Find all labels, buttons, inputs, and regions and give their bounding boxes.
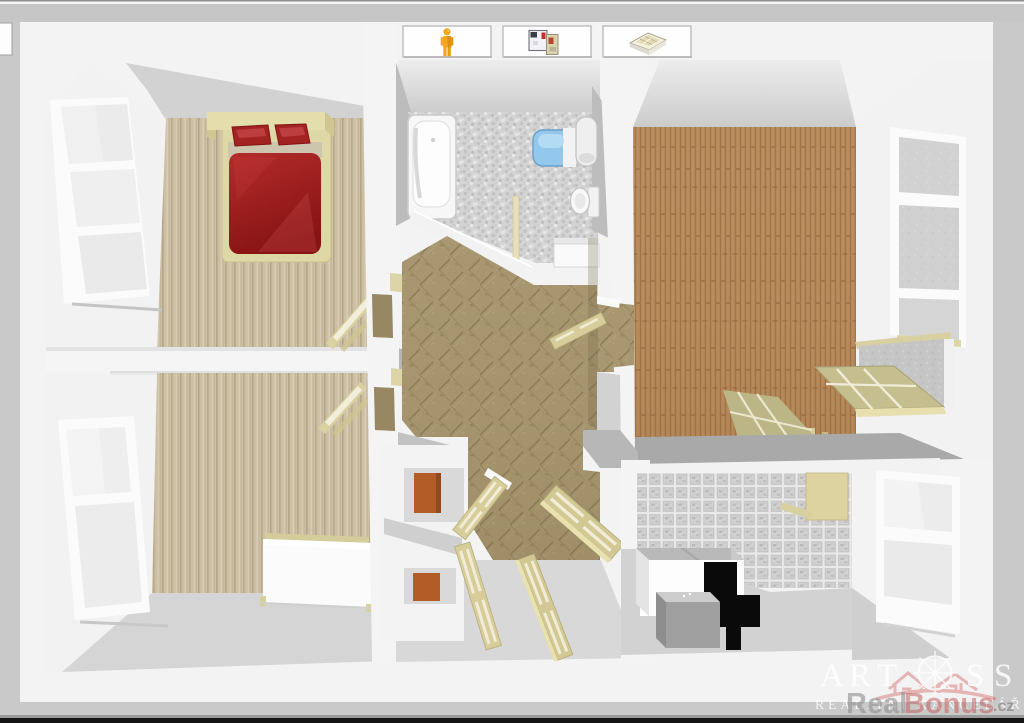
- svg-text:Real: Real: [846, 688, 907, 720]
- svg-text:Bonus: Bonus: [904, 688, 994, 720]
- svg-text:A: A: [820, 658, 844, 694]
- svg-text:.cz: .cz: [993, 698, 1014, 715]
- svg-text:S: S: [994, 658, 1012, 694]
